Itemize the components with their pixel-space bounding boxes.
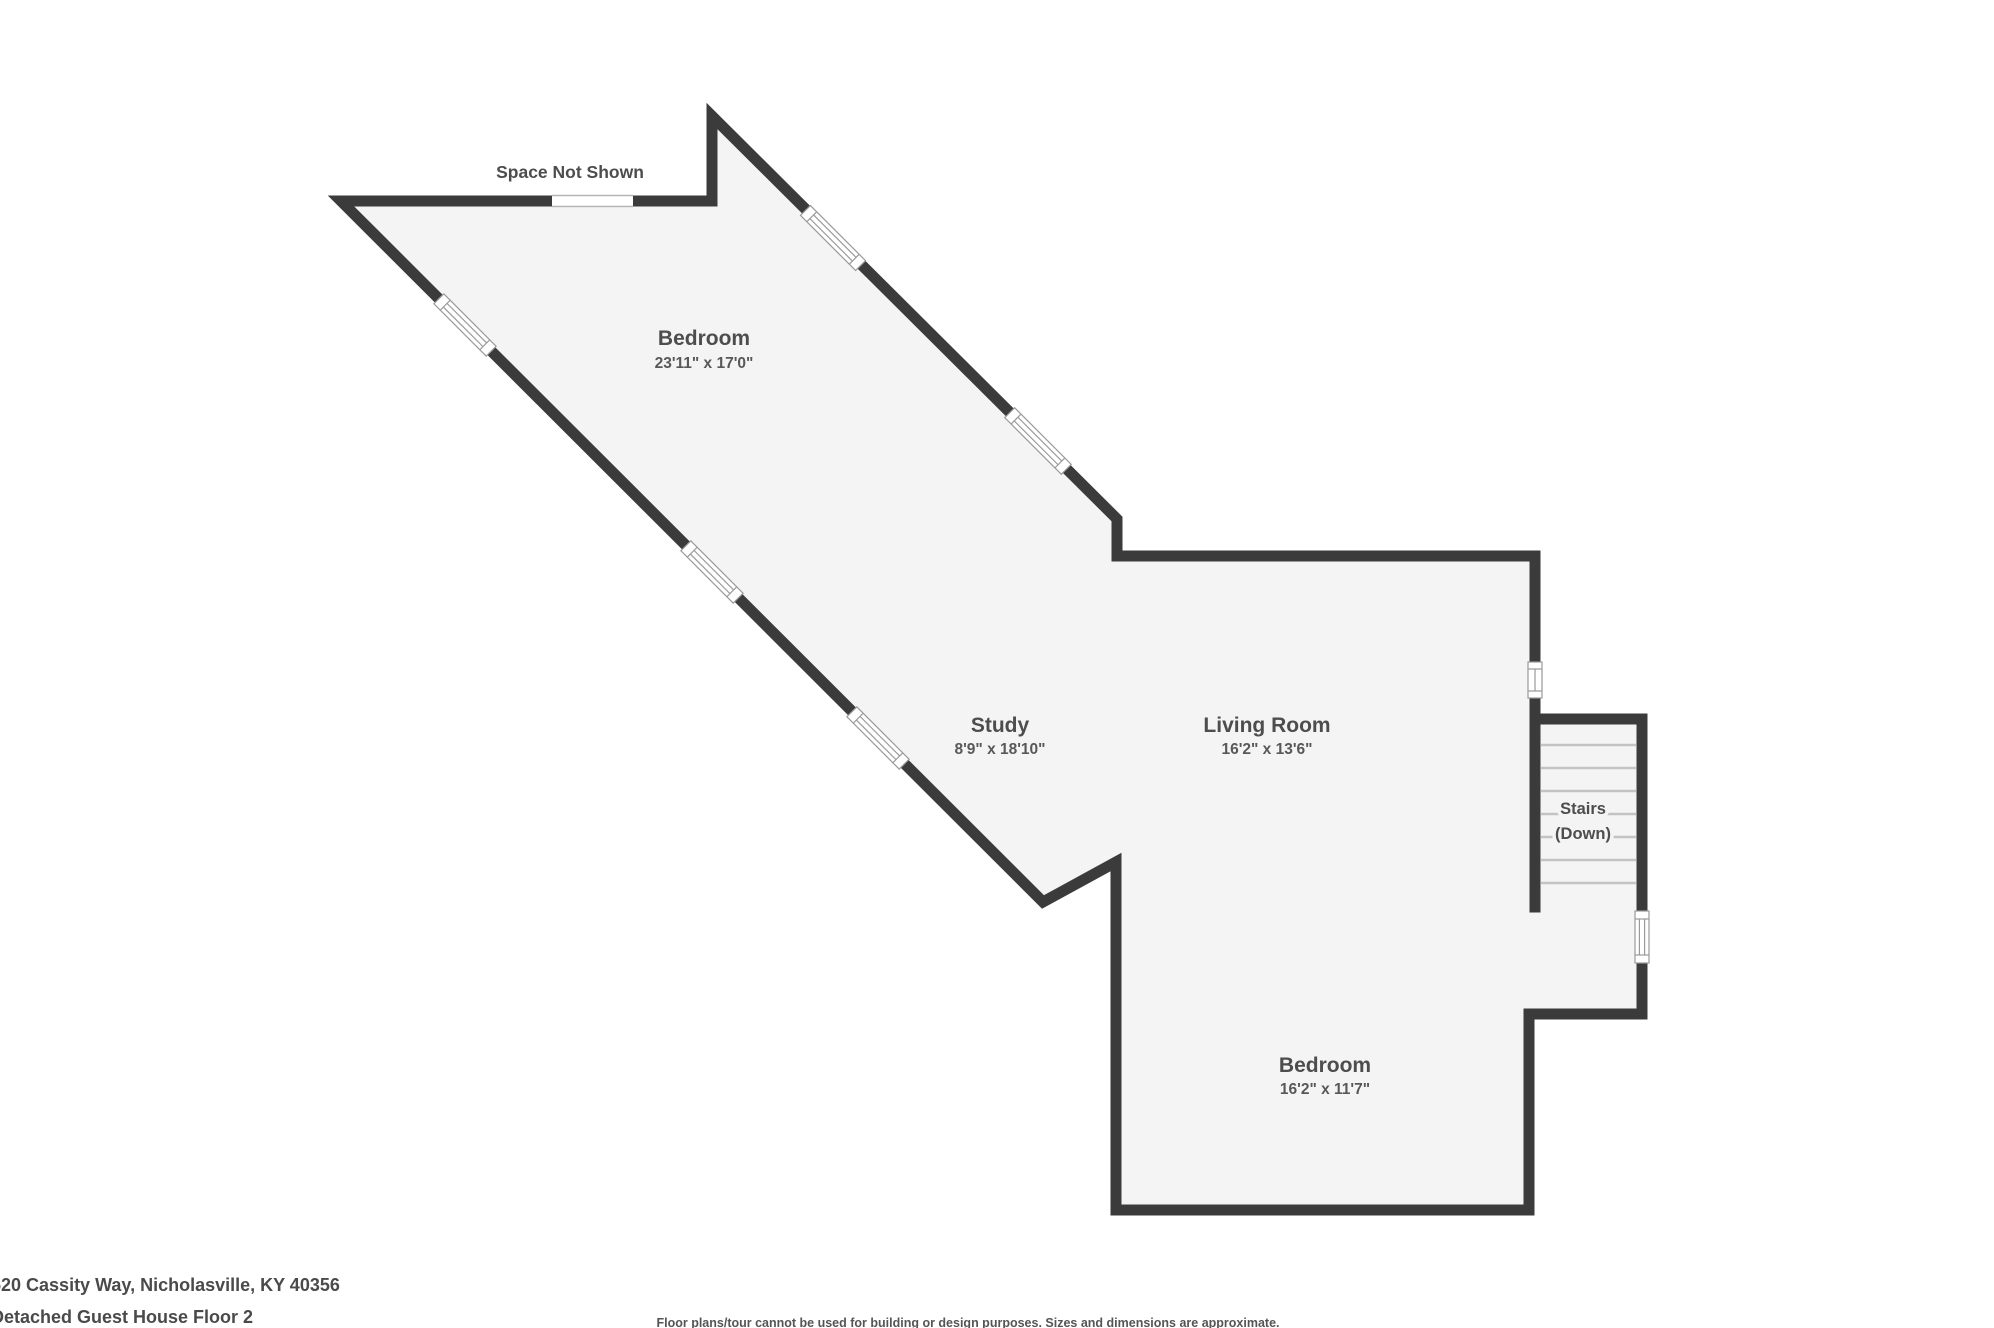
footer-address: 520 Cassity Way, Nicholasville, KY 40356 — [0, 1275, 340, 1295]
space-not-shown-label: Space Not Shown — [496, 162, 644, 182]
room-label-bedroom-upper: Bedroom — [658, 327, 750, 350]
room-label-living-room: Living Room — [1203, 714, 1330, 737]
room-dims-living-room: 16'2" x 13'6" — [1221, 741, 1312, 758]
window — [1528, 662, 1542, 698]
room-dims-bedroom-upper: 23'11" x 17'0" — [655, 355, 754, 372]
floorplan-page: Space Not Shown Bedroom 23'11" x 17'0" S… — [0, 0, 1994, 1328]
room-label-bedroom-lower: Bedroom — [1279, 1054, 1371, 1077]
room-dims-bedroom-lower: 16'2" x 11'7" — [1280, 1081, 1370, 1098]
stairs-label-line1: Stairs — [1560, 800, 1606, 818]
footer-disclaimer: Floor plans/tour cannot be used for buil… — [656, 1316, 1279, 1328]
door-opening — [552, 195, 633, 208]
footer-floor-label: Detached Guest House Floor 2 — [0, 1307, 253, 1327]
room-label-study: Study — [971, 714, 1030, 737]
floorplan-svg: Space Not Shown Bedroom 23'11" x 17'0" S… — [0, 0, 1994, 1328]
floor-outline — [341, 116, 1642, 1210]
room-dims-study: 8'9" x 18'10" — [954, 741, 1045, 758]
stairs-label-line2: (Down) — [1555, 825, 1611, 843]
window — [1635, 911, 1649, 963]
